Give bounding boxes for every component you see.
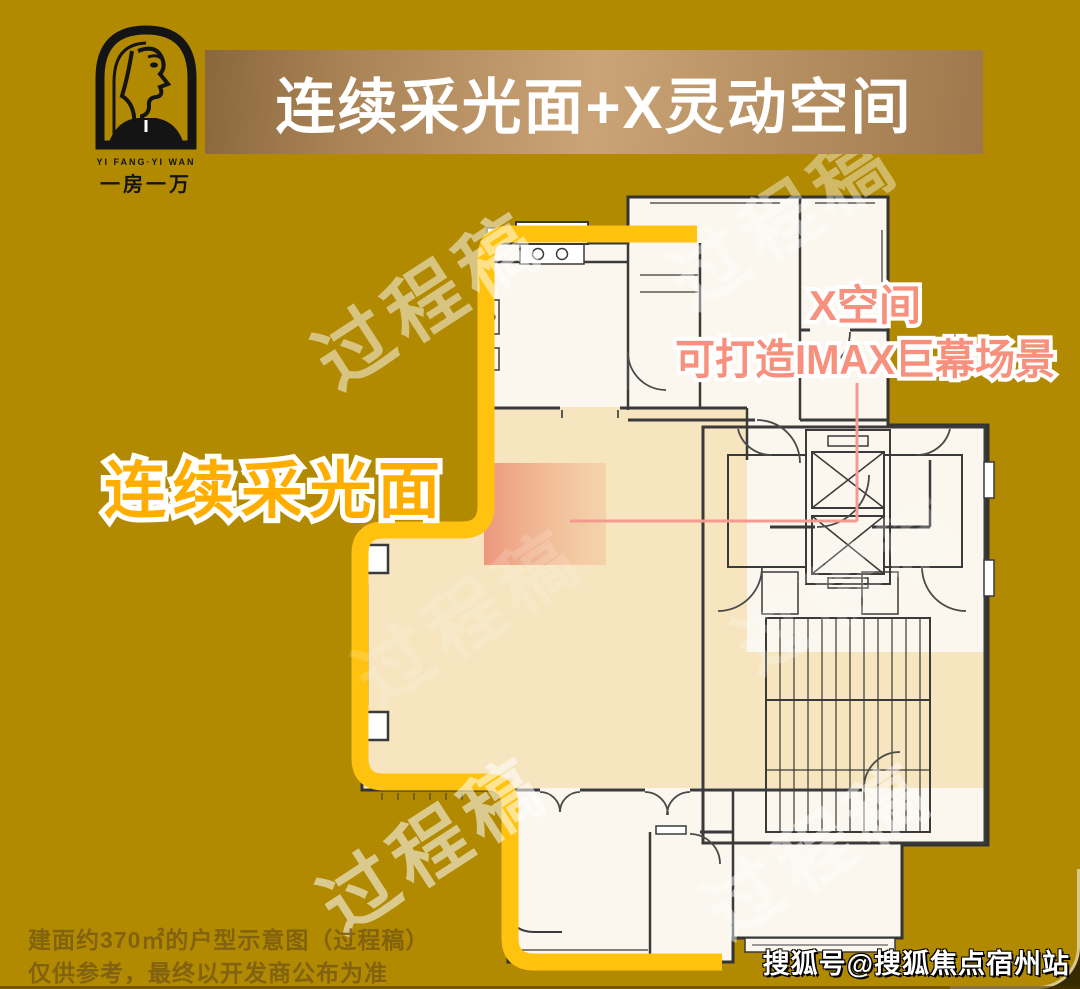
publisher-credit: 搜狐号@搜狐焦点宿州站 [763, 942, 1070, 981]
daylight-label: 连续采光面 [72, 438, 472, 538]
brand-name-en: YI FANG·YI WAN [64, 157, 228, 167]
x-space-label-line2: 可打造IMAX巨幕场景 [675, 336, 1055, 383]
poster: 过程稿 过程稿 过程稿 过程稿 过程稿 过程稿 连续采光面+X灵动空间 YI F… [0, 0, 1080, 989]
face-arch-icon [94, 24, 198, 150]
page-title: 连续采光面+X灵动空间 [275, 59, 912, 146]
brand-name-cn: 一房一万 [64, 168, 228, 197]
disclaimer-line1: 建面约370㎡的户型示意图（过程稿） [28, 924, 429, 957]
disclaimer: 建面约370㎡的户型示意图（过程稿） 仅供参考，最终以开发商公布为准 [28, 924, 429, 989]
x-space-label: X空间 可打造IMAX巨幕场景 [640, 272, 1080, 392]
title-banner: 连续采光面+X灵动空间 [205, 50, 983, 154]
brand-logo: YI FANG·YI WAN 一房一万 [64, 24, 228, 197]
disclaimer-line2: 仅供参考，最终以开发商公布为准 [28, 957, 429, 989]
x-space-highlight [484, 463, 606, 565]
daylight-label-text: 连续采光面 [104, 457, 440, 526]
x-space-label-line1: X空间 [809, 282, 921, 329]
